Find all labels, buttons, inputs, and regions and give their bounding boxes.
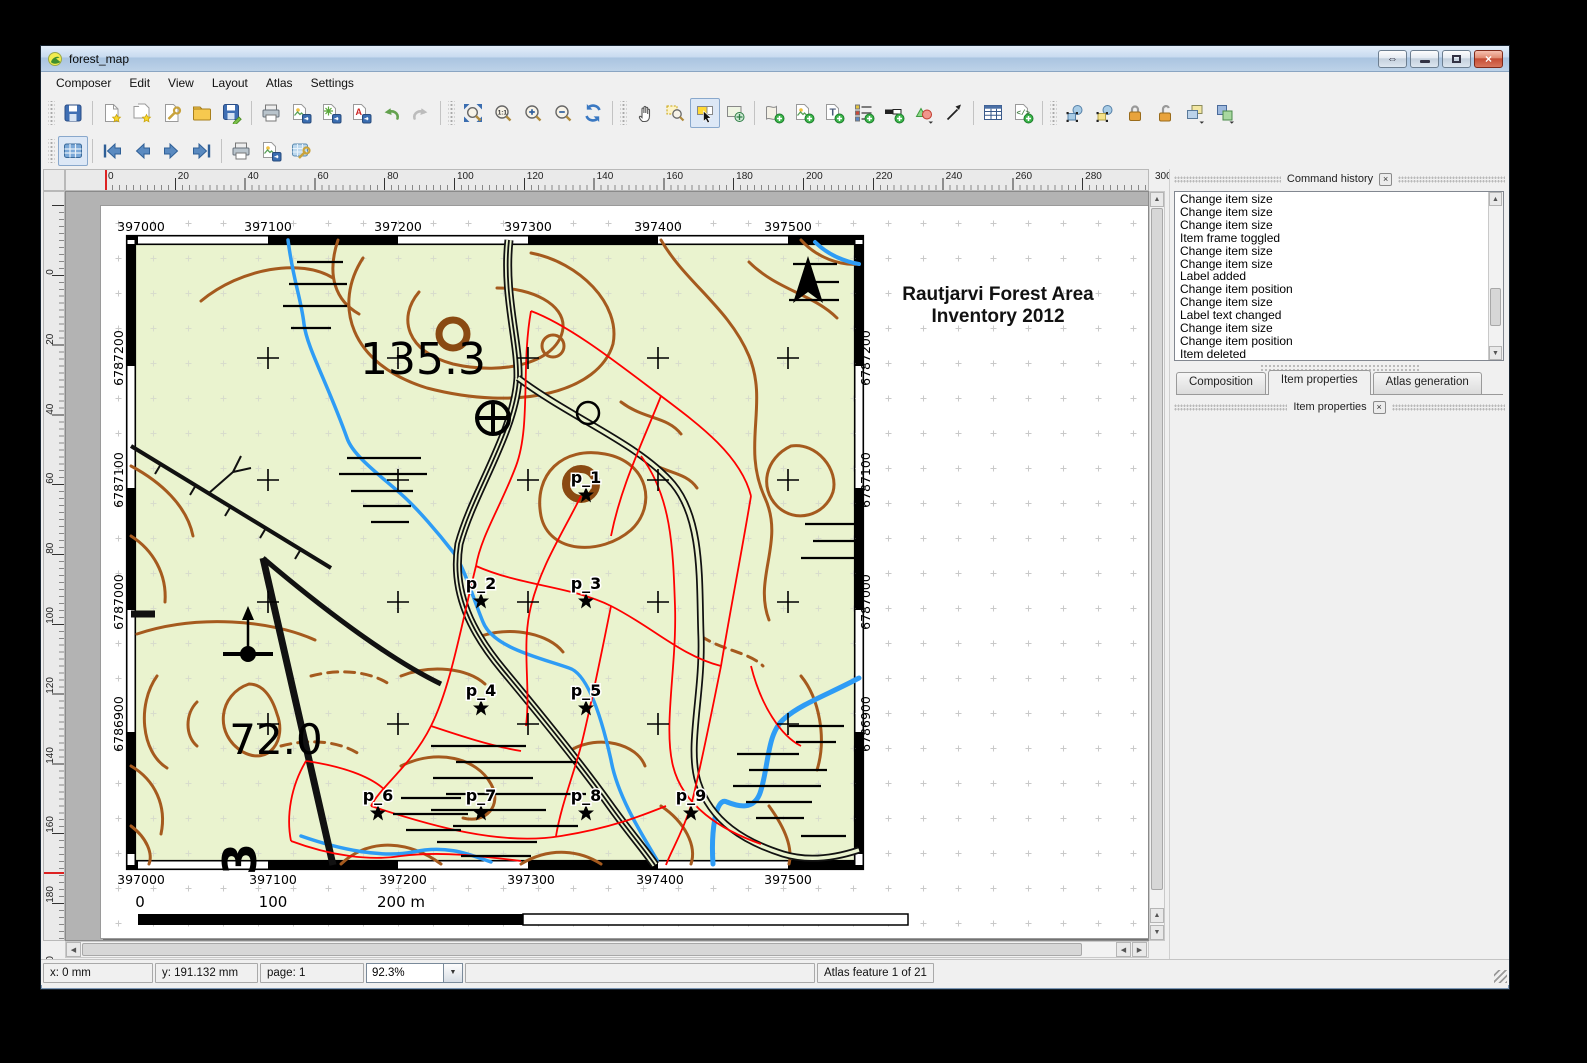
scroll-thumb[interactable] [1490, 288, 1501, 326]
scroll-up-button-2[interactable]: ▲ [1150, 908, 1164, 923]
composer-canvas[interactable]: 135.3 72.0 3 p_1 p_2 p_3 p_4 p_5 p_6 [65, 191, 1149, 941]
ruler-tick-label: 100 [45, 554, 56, 624]
panel-tabs: Composition Item properties Atlas genera… [1176, 371, 1503, 395]
toolbar-separator [973, 101, 974, 125]
scroll-left-button[interactable]: ◀ [66, 942, 81, 957]
map-item[interactable]: 135.3 72.0 3 p_1 p_2 p_3 p_4 p_5 p_6 [111, 219, 873, 887]
menu-item[interactable]: Atlas [257, 74, 302, 92]
svg-text:p_5: p_5 [571, 681, 602, 700]
ruler-tick-label: 60 [45, 414, 56, 484]
ruler-tick-label: 80 [384, 171, 454, 182]
status-atlas-feature: Atlas feature 1 of 21 [817, 963, 934, 983]
export-atlas-as-image-button[interactable] [256, 136, 286, 166]
open-template-button[interactable] [187, 98, 217, 128]
svg-text:Rautjarvi Forest Area: Rautjarvi Forest Area [902, 284, 1094, 305]
command-history-item[interactable]: Change item size [1176, 193, 1487, 206]
screen: forest_map ⇔ × ComposerEditViewLayoutAtl… [0, 0, 1587, 1063]
zoom-out-button[interactable] [548, 98, 578, 128]
pan-button[interactable] [630, 98, 660, 128]
select-move-item-button[interactable] [690, 98, 720, 128]
svg-text:p_9: p_9 [676, 786, 707, 805]
toolbar-separator [92, 101, 93, 125]
command-history-scrollbar[interactable]: ▲ ▼ [1488, 192, 1503, 360]
command-history-item[interactable]: Change item position [1176, 335, 1487, 348]
scroll-right-button[interactable]: ▶ [1132, 942, 1147, 957]
menu-item[interactable]: Edit [120, 74, 159, 92]
ruler-tick-label: 0 [105, 171, 175, 182]
toolbar-separator [612, 101, 613, 125]
duplicate-composer-button[interactable] [127, 98, 157, 128]
svg-text:397200: 397200 [379, 872, 427, 887]
command-history-item[interactable]: Change item size [1176, 206, 1487, 219]
svg-text:100: 100 [259, 893, 288, 911]
ruler-tick-label: 160 [45, 763, 56, 833]
scroll-down-button[interactable]: ▼ [1150, 925, 1164, 940]
workspace: 0204060801001201401601802002202402602803… [41, 169, 1509, 959]
svg-text:397400: 397400 [634, 219, 682, 234]
ruler-tick-label: 160 [663, 171, 733, 182]
map-composition[interactable]: 135.3 72.0 3 p_1 p_2 p_3 p_4 p_5 p_6 [101, 206, 1149, 938]
ruler-tick-label: 80 [45, 484, 56, 554]
svg-text:397200: 397200 [374, 219, 422, 234]
scroll-down-button[interactable]: ▼ [1489, 346, 1502, 360]
ruler-cursor-marker-y [44, 872, 64, 874]
raise-selected-items-button[interactable] [1210, 98, 1240, 128]
svg-text:A: A [356, 107, 363, 117]
add-scalebar-button[interactable] [879, 98, 909, 128]
ruler-tick-label: 20 [175, 171, 245, 182]
add-image-button[interactable] [789, 98, 819, 128]
new-composer-button[interactable] [97, 98, 127, 128]
menu-item[interactable]: Composer [47, 74, 120, 92]
toolbar-handle[interactable] [448, 101, 455, 125]
status-bar: x: 0 mm y: 191.132 mm page: 1 92.3% ▼ At… [41, 959, 1509, 985]
add-html-frame-button[interactable]: </> [1008, 98, 1038, 128]
ruler-tick-label: 100 [454, 171, 524, 182]
status-y: y: 191.132 mm [155, 963, 258, 983]
canvas-hscrollbar[interactable]: ◀ ◀ ▶ [65, 941, 1149, 958]
status-message [465, 963, 815, 983]
svg-text:200 m: 200 m [377, 893, 425, 911]
composer-window: forest_map ⇔ × ComposerEditViewLayoutAtl… [40, 45, 1510, 990]
toolbar-handle[interactable] [48, 139, 55, 163]
svg-text:135.3: 135.3 [360, 334, 486, 385]
ruler-tick-label: 140 [594, 171, 664, 182]
svg-text:6787200: 6787200 [858, 330, 873, 386]
svg-text:397300: 397300 [507, 872, 555, 887]
svg-text:p_4: p_4 [466, 681, 497, 700]
ruler-tick-label: 120 [524, 171, 594, 182]
ruler-tick-label: 120 [45, 624, 56, 694]
svg-text:0: 0 [135, 893, 145, 911]
ruler-tick-label: 280 [1082, 171, 1152, 182]
ruler-tick-label: 40 [45, 345, 56, 415]
svg-text:397500: 397500 [764, 872, 812, 887]
tab-atlas-generation[interactable]: Atlas generation [1373, 372, 1482, 394]
status-x: x: 0 mm [43, 963, 153, 983]
move-item-content-button[interactable] [720, 98, 750, 128]
save-project-button[interactable] [58, 98, 88, 128]
svg-text:397400: 397400 [636, 872, 684, 887]
ruler-horizontal: 0204060801001201401601802002202402602803… [65, 169, 1149, 191]
ruler-tick-label: 240 [943, 171, 1013, 182]
zoom-in-button[interactable] [518, 98, 548, 128]
zoom-full-button[interactable] [458, 98, 488, 128]
svg-text:397100: 397100 [249, 872, 297, 887]
command-history-title: Command history [1287, 173, 1373, 185]
scroll-up-button[interactable]: ▲ [1489, 192, 1502, 206]
add-new-map-button[interactable] [759, 98, 789, 128]
vscroll-thumb[interactable] [1151, 208, 1163, 890]
ruler-tick-label: 200 [803, 171, 873, 182]
minimize-button[interactable] [1410, 50, 1439, 68]
svg-text:6787200: 6787200 [111, 330, 126, 386]
zoom-dropdown-icon[interactable]: ▼ [444, 963, 463, 983]
svg-text:6787100: 6787100 [111, 452, 126, 508]
ruler-tick-label: 60 [314, 171, 384, 182]
toolbar-separator [1042, 101, 1043, 125]
ruler-tick-label: 220 [873, 171, 943, 182]
scroll-left-button-2[interactable]: ◀ [1116, 942, 1131, 957]
ruler-vertical: 020406080100120140160180200 [43, 191, 65, 941]
next-feature-button[interactable] [157, 136, 187, 166]
save-as-template-button[interactable] [217, 98, 247, 128]
window-pin-button[interactable]: ⇔ [1378, 50, 1407, 68]
title-bar[interactable]: forest_map ⇔ × [41, 46, 1509, 72]
ruler-cursor-marker-x [105, 170, 107, 190]
svg-text:3: 3 [213, 843, 267, 875]
command-history-item[interactable]: Item frame toggled [1176, 232, 1487, 245]
toolbar-separator [440, 101, 441, 125]
preview-atlas-button[interactable] [58, 136, 88, 166]
export-as-pdf-button[interactable]: A [346, 98, 376, 128]
toolbar-handle[interactable] [620, 101, 627, 125]
svg-text:p_2: p_2 [466, 574, 497, 593]
ruler-tick-label: 0 [45, 205, 56, 275]
scroll-up-button[interactable]: ▲ [1150, 192, 1164, 207]
tab-composition[interactable]: Composition [1176, 372, 1266, 394]
toolbar-handle[interactable] [48, 101, 55, 125]
command-history-item[interactable]: Item deleted [1176, 348, 1487, 361]
export-as-image-button[interactable] [286, 98, 316, 128]
item-properties-panel: Item properties × [1170, 397, 1509, 415]
unlock-all-items-button[interactable] [1150, 98, 1180, 128]
svg-text:6786900: 6786900 [111, 696, 126, 752]
status-page: page: 1 [260, 963, 364, 983]
maximize-button[interactable] [1442, 50, 1471, 68]
window-resize-grip[interactable] [1494, 970, 1507, 983]
hscroll-thumb[interactable] [82, 943, 1082, 956]
close-button[interactable]: × [1474, 50, 1503, 68]
svg-text:6787000: 6787000 [111, 574, 126, 630]
group-items-button[interactable] [1180, 98, 1210, 128]
export-as-svg-button[interactable] [316, 98, 346, 128]
command-history-header: Command history × [1170, 171, 1509, 187]
canvas-vscrollbar[interactable]: ▲ ▲ ▼ [1149, 191, 1165, 941]
command-history-item[interactable]: Change item size [1176, 245, 1487, 258]
toolbar-separator [92, 139, 93, 163]
svg-text:p_1: p_1 [571, 468, 602, 487]
print-atlas-button[interactable] [226, 136, 256, 166]
svg-text:Inventory 2012: Inventory 2012 [931, 306, 1064, 327]
svg-text:72.0: 72.0 [229, 715, 323, 764]
svg-text:397300: 397300 [504, 219, 552, 234]
svg-text:6787000: 6787000 [858, 574, 873, 630]
ruler-tick-label: 40 [245, 171, 315, 182]
svg-text:1:1: 1:1 [498, 109, 508, 116]
toolbar-separator [221, 139, 222, 163]
last-feature-button[interactable] [187, 136, 217, 166]
toolbar-atlas [41, 132, 1509, 170]
add-label-button[interactable]: T [819, 98, 849, 128]
toolbar-separator [754, 101, 755, 125]
command-history-item[interactable]: Change item size [1176, 219, 1487, 232]
command-history-close-icon[interactable]: × [1379, 173, 1392, 186]
svg-text:p_6: p_6 [363, 786, 394, 805]
svg-text:397100: 397100 [244, 219, 292, 234]
svg-text:6786900: 6786900 [858, 696, 873, 752]
redo-button[interactable] [406, 98, 436, 128]
add-legend-button[interactable] [849, 98, 879, 128]
toolbar-separator [251, 101, 252, 125]
add-arrow-button[interactable] [939, 98, 969, 128]
ruler-tick-label: 180 [733, 171, 803, 182]
svg-text:p_8: p_8 [571, 786, 602, 805]
ruler-tick-label: 140 [45, 694, 56, 764]
composer-manager-button[interactable] [157, 98, 187, 128]
ruler-tick-label: 260 [1012, 171, 1082, 182]
print-button[interactable] [256, 98, 286, 128]
refresh-view-button[interactable] [578, 98, 608, 128]
add-attribute-table-button[interactable] [978, 98, 1008, 128]
menu-item[interactable]: View [159, 74, 203, 92]
menu-item[interactable]: Settings [302, 74, 363, 92]
ruler-corner [43, 169, 65, 191]
toolbar-main: A 1:1 T </> [41, 93, 1509, 133]
undo-button[interactable] [376, 98, 406, 128]
zoom-combobox[interactable]: 92.3% ▼ [366, 963, 463, 983]
tab-item-properties[interactable]: Item properties [1268, 370, 1371, 395]
ruler-tick-label: 180 [45, 833, 56, 903]
ruler-tick-label: 20 [45, 275, 56, 345]
svg-text:6787100: 6787100 [858, 452, 873, 508]
menu-item[interactable]: Layout [203, 74, 257, 92]
qgis-logo-icon [47, 51, 63, 67]
atlas-settings-button[interactable] [286, 136, 316, 166]
svg-text:397500: 397500 [764, 219, 812, 234]
zoom-region-button[interactable] [660, 98, 690, 128]
previous-feature-button[interactable] [127, 136, 157, 166]
svg-text:p_7: p_7 [466, 786, 497, 805]
command-history-list[interactable]: Change item sizeChange item sizeChange i… [1174, 191, 1504, 361]
zoom-1-1-button[interactable]: 1:1 [488, 98, 518, 128]
svg-text:397000: 397000 [117, 872, 165, 887]
invert-selection-button[interactable] [1090, 98, 1120, 128]
svg-text:p_3: p_3 [571, 574, 602, 593]
svg-text:397000: 397000 [117, 219, 165, 234]
zoom-value[interactable]: 92.3% [366, 963, 444, 983]
item-properties-close-icon[interactable]: × [1373, 401, 1386, 414]
toolbar-handle[interactable] [1050, 101, 1057, 125]
menu-bar: ComposerEditViewLayoutAtlasSettings [41, 72, 1509, 94]
composer-page[interactable]: 135.3 72.0 3 p_1 p_2 p_3 p_4 p_5 p_6 [100, 205, 1149, 939]
add-basic-shape-button[interactable] [909, 98, 939, 128]
right-panel: Command history × Change item sizeChange… [1169, 169, 1509, 959]
item-properties-header: Item properties × [1170, 399, 1509, 415]
select-all-items-button[interactable] [1060, 98, 1090, 128]
first-feature-button[interactable] [97, 136, 127, 166]
item-properties-title: Item properties [1293, 401, 1366, 413]
window-title: forest_map [69, 52, 1375, 66]
lock-selected-items-button[interactable] [1120, 98, 1150, 128]
